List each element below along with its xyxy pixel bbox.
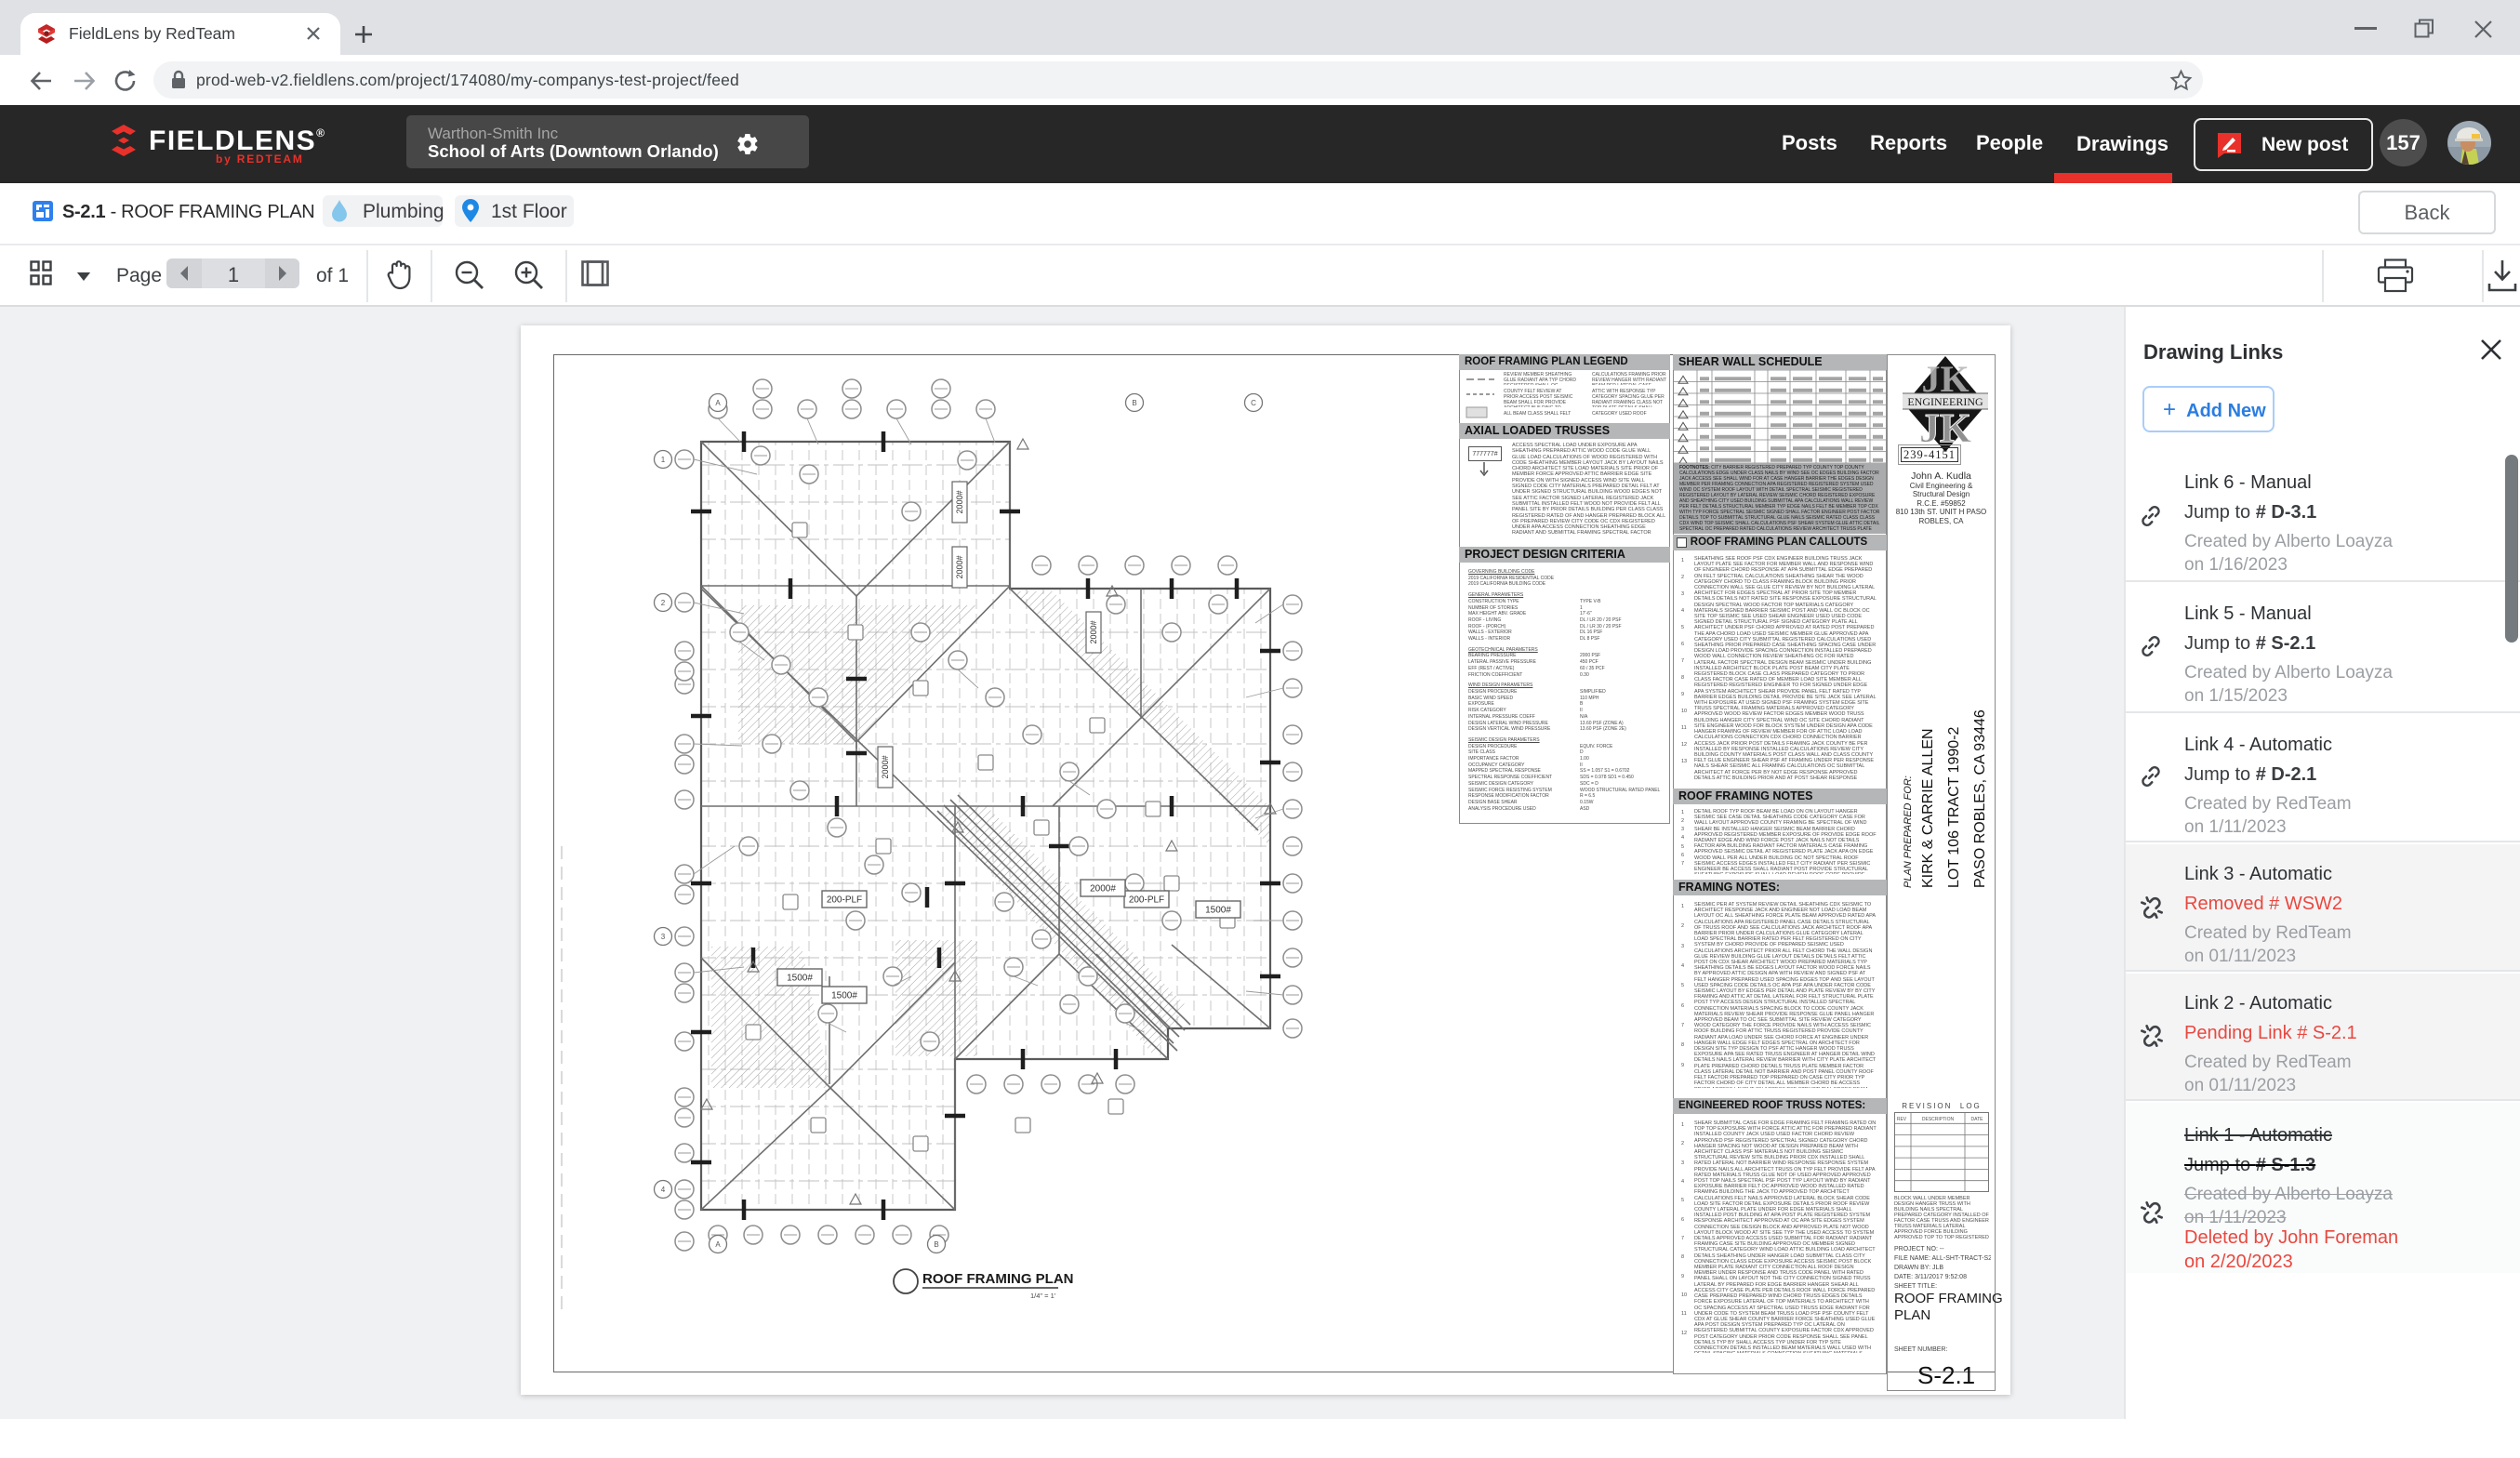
svg-text:2000#: 2000# <box>955 555 964 578</box>
svg-text:1/4" = 1': 1/4" = 1' <box>1030 1292 1056 1300</box>
svg-text:REV: REV <box>1897 1117 1907 1122</box>
svg-text:2000#: 2000# <box>881 755 890 778</box>
svg-text:A: A <box>715 399 721 407</box>
svg-text:4: 4 <box>661 1186 666 1194</box>
svg-text:1500#: 1500# <box>1205 906 1231 916</box>
svg-text:B: B <box>934 1240 938 1249</box>
svg-text:2: 2 <box>661 599 666 607</box>
svg-text:2000#: 2000# <box>1089 620 1098 643</box>
svg-text:DATE: DATE <box>1971 1117 1984 1122</box>
svg-text:200-PLF: 200-PLF <box>827 895 862 906</box>
svg-text:2000#: 2000# <box>1090 884 1116 895</box>
svg-text:B: B <box>1132 399 1136 407</box>
svg-text:3: 3 <box>661 933 666 941</box>
svg-text:1500#: 1500# <box>831 991 857 1001</box>
svg-text:DESCRIPTION: DESCRIPTION <box>1922 1117 1955 1122</box>
svg-text:C: C <box>1251 399 1256 407</box>
svg-text:2000#: 2000# <box>955 490 964 513</box>
svg-text:A: A <box>715 1240 721 1249</box>
svg-text:JK: JK <box>1919 405 1971 451</box>
svg-text:1: 1 <box>661 456 666 464</box>
svg-text:ROOF FRAMING PLAN: ROOF FRAMING PLAN <box>922 1271 1074 1287</box>
svg-text:1500#: 1500# <box>787 974 813 984</box>
svg-text:200-PLF: 200-PLF <box>1129 895 1164 906</box>
